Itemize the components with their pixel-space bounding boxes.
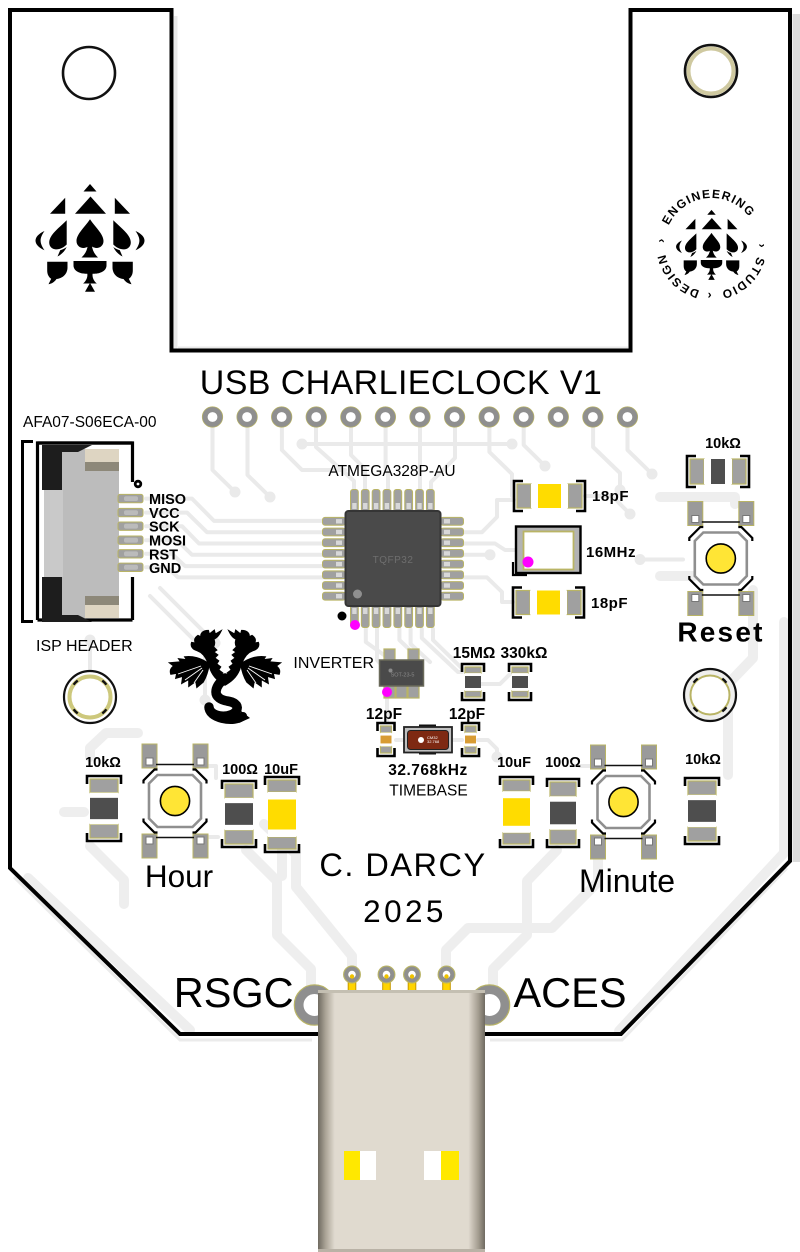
svg-text:TIMEBASE: TIMEBASE bbox=[389, 783, 467, 800]
svg-text:100Ω: 100Ω bbox=[222, 762, 258, 778]
svg-text:ACES: ACES bbox=[513, 969, 626, 1016]
svg-text:10kΩ: 10kΩ bbox=[685, 752, 721, 768]
svg-text:15MΩ: 15MΩ bbox=[453, 645, 496, 662]
svg-text:18pF: 18pF bbox=[591, 595, 628, 612]
svg-text:2025: 2025 bbox=[363, 893, 447, 929]
svg-text:10uF: 10uF bbox=[264, 762, 298, 778]
svg-text:Hour: Hour bbox=[145, 858, 213, 894]
svg-text:INVERTER: INVERTER bbox=[293, 655, 374, 672]
svg-text:10kΩ: 10kΩ bbox=[85, 755, 121, 771]
svg-text:ATMEGA328P-AU: ATMEGA328P-AU bbox=[328, 463, 455, 480]
svg-text:Minute: Minute bbox=[579, 863, 675, 899]
svg-text:TQFP32: TQFP32 bbox=[373, 555, 414, 566]
svg-text:12pF: 12pF bbox=[449, 706, 485, 723]
svg-text:C. DARCY: C. DARCY bbox=[319, 847, 486, 883]
svg-text:USB CHARLIECLOCK V1: USB CHARLIECLOCK V1 bbox=[200, 364, 603, 402]
svg-text:Reset: Reset bbox=[677, 617, 764, 648]
svg-text:330kΩ: 330kΩ bbox=[501, 645, 548, 662]
svg-text:SOT-23-5: SOT-23-5 bbox=[391, 673, 415, 679]
svg-text:12pF: 12pF bbox=[366, 706, 402, 723]
svg-text:18pF: 18pF bbox=[592, 488, 629, 505]
svg-text:AFA07-S06ECA-00: AFA07-S06ECA-00 bbox=[23, 414, 157, 431]
svg-text:32.768kHz: 32.768kHz bbox=[388, 762, 467, 779]
svg-text:100Ω: 100Ω bbox=[545, 755, 581, 771]
svg-text:RSGC: RSGC bbox=[174, 969, 294, 1016]
svg-text:32.768: 32.768 bbox=[427, 739, 440, 744]
svg-text:10kΩ: 10kΩ bbox=[705, 436, 741, 452]
svg-text:GND: GND bbox=[149, 561, 181, 577]
svg-text:ISP HEADER: ISP HEADER bbox=[36, 638, 133, 655]
svg-text:16MHz: 16MHz bbox=[586, 544, 636, 561]
svg-text:10uF: 10uF bbox=[497, 755, 531, 771]
